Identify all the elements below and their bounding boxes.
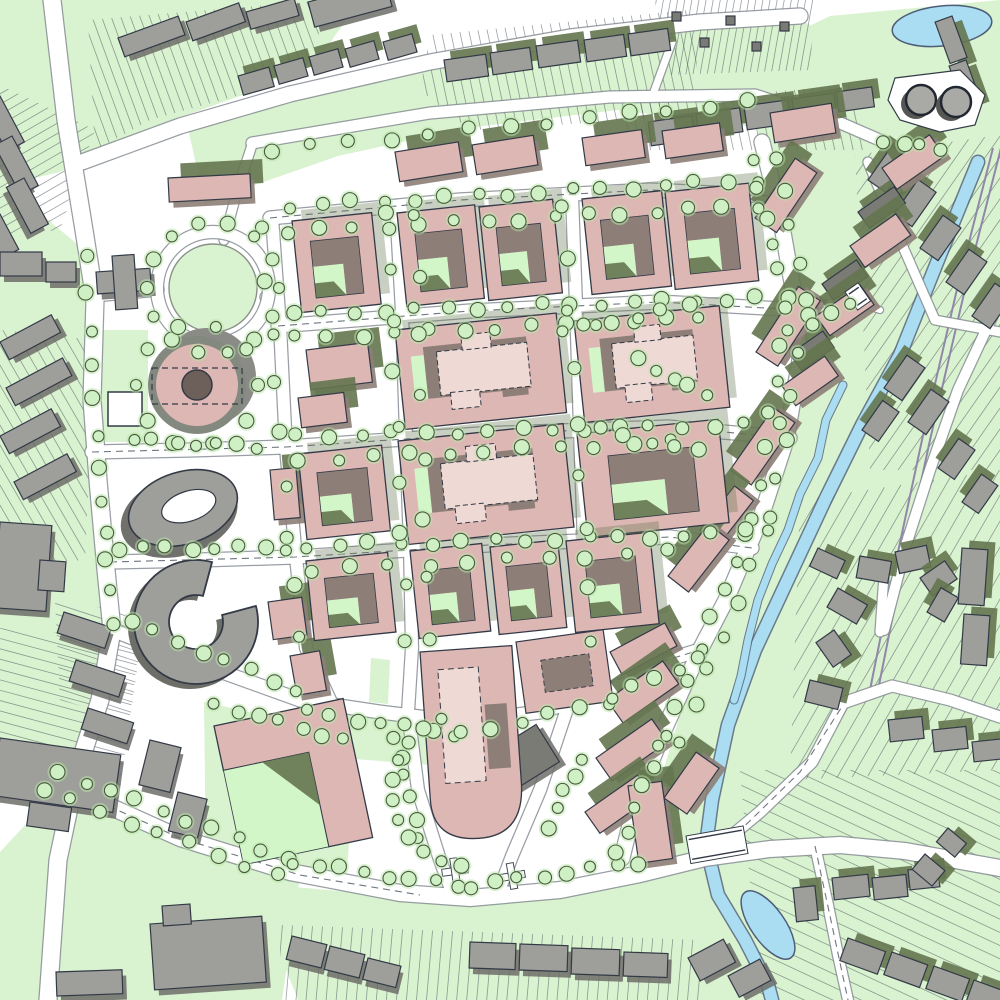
tree-icon bbox=[104, 784, 117, 797]
tree-icon bbox=[667, 700, 682, 715]
existing-building bbox=[150, 916, 271, 996]
tree-icon bbox=[547, 425, 558, 436]
tree-icon bbox=[612, 208, 627, 223]
tree-icon bbox=[259, 540, 274, 555]
tree-icon bbox=[514, 440, 529, 455]
tree-icon bbox=[408, 302, 419, 313]
tree-icon bbox=[604, 315, 619, 330]
tree-icon bbox=[748, 155, 759, 166]
tree-icon bbox=[289, 330, 300, 341]
tree-icon bbox=[105, 585, 116, 596]
tree-icon bbox=[393, 755, 404, 766]
existing-building bbox=[162, 904, 191, 926]
tree-icon bbox=[290, 686, 301, 697]
tree-icon bbox=[504, 119, 519, 134]
tree-icon bbox=[718, 583, 731, 596]
tree-icon bbox=[470, 302, 485, 317]
tree-icon bbox=[511, 872, 522, 883]
tree-icon bbox=[611, 530, 624, 543]
tree-icon bbox=[488, 874, 503, 889]
tree-icon bbox=[580, 580, 595, 595]
tree-icon bbox=[337, 733, 348, 744]
tree-icon bbox=[280, 545, 291, 556]
tree-icon bbox=[411, 327, 426, 342]
tree-icon bbox=[78, 285, 93, 300]
tree-icon bbox=[767, 239, 778, 250]
tree-icon bbox=[402, 445, 417, 460]
tree-icon bbox=[541, 706, 554, 719]
tree-icon bbox=[222, 347, 233, 358]
tree-icon bbox=[387, 731, 400, 744]
tree-icon bbox=[141, 343, 154, 356]
tree-icon bbox=[445, 449, 456, 460]
tree-icon bbox=[383, 222, 396, 235]
tree-icon bbox=[393, 476, 406, 489]
tree-icon bbox=[674, 665, 685, 676]
circular-building-core bbox=[182, 370, 212, 400]
tree-icon bbox=[625, 679, 638, 692]
tree-icon bbox=[750, 181, 763, 194]
tree-icon bbox=[541, 821, 556, 836]
tree-icon bbox=[661, 543, 674, 556]
tree-icon bbox=[622, 826, 635, 839]
tree-icon bbox=[272, 424, 287, 439]
existing-building bbox=[961, 606, 998, 666]
tree-icon bbox=[91, 460, 106, 475]
tree-icon bbox=[192, 217, 205, 230]
tree-icon bbox=[267, 675, 282, 690]
tree-icon bbox=[531, 186, 546, 201]
tree-icon bbox=[481, 425, 494, 438]
tree-icon bbox=[210, 321, 221, 332]
tree-icon bbox=[462, 121, 475, 134]
tree-icon bbox=[560, 251, 575, 266]
masterplan-map bbox=[0, 0, 1000, 1000]
tree-icon bbox=[281, 481, 292, 492]
tree-icon bbox=[678, 531, 689, 542]
tree-icon bbox=[209, 544, 220, 555]
tree-icon bbox=[770, 152, 783, 165]
tree-icon bbox=[541, 119, 552, 130]
tree-icon bbox=[186, 543, 201, 558]
tree-icon bbox=[229, 436, 244, 451]
map-canvas bbox=[0, 0, 1000, 1000]
tree-icon bbox=[516, 420, 531, 435]
tree-icon bbox=[427, 539, 440, 552]
tree-icon bbox=[691, 442, 706, 457]
tree-icon bbox=[266, 310, 279, 323]
tree-icon bbox=[220, 216, 235, 231]
tree-icon bbox=[401, 579, 412, 590]
tree-icon bbox=[536, 297, 549, 310]
tree-icon bbox=[172, 437, 185, 450]
tree-icon bbox=[151, 827, 162, 838]
tree-icon bbox=[137, 541, 148, 552]
existing-building bbox=[56, 970, 127, 1000]
tree-icon bbox=[93, 805, 106, 818]
tree-icon bbox=[290, 453, 305, 468]
tree-icon bbox=[342, 559, 357, 574]
tree-icon bbox=[191, 440, 202, 451]
tree-icon bbox=[409, 813, 424, 828]
tree-icon bbox=[417, 845, 430, 858]
tree-icon bbox=[629, 295, 642, 308]
tree-icon bbox=[272, 868, 285, 881]
tree-icon bbox=[876, 136, 889, 149]
supermarket-block bbox=[420, 646, 525, 842]
tree-icon bbox=[124, 817, 139, 832]
tree-icon bbox=[572, 700, 587, 715]
tree-icon bbox=[770, 473, 781, 484]
tree-icon bbox=[687, 174, 700, 187]
storage-tank bbox=[906, 85, 936, 115]
tree-icon bbox=[653, 740, 664, 751]
tree-icon bbox=[587, 442, 600, 455]
courtyard-block bbox=[297, 434, 401, 539]
tree-icon bbox=[348, 307, 361, 320]
tree-icon bbox=[794, 257, 807, 270]
tree-icon bbox=[385, 364, 400, 379]
tree-icon bbox=[50, 765, 65, 780]
tree-icon bbox=[305, 565, 318, 578]
tree-icon bbox=[704, 526, 717, 539]
tree-icon bbox=[718, 632, 729, 643]
tree-icon bbox=[760, 211, 775, 226]
tree-icon bbox=[631, 351, 646, 366]
tree-icon bbox=[580, 522, 593, 535]
tree-icon bbox=[607, 693, 618, 704]
tree-icon bbox=[762, 406, 775, 419]
tree-icon bbox=[443, 301, 456, 314]
tree-icon bbox=[570, 417, 585, 432]
existing-building bbox=[726, 16, 735, 25]
tree-icon bbox=[383, 872, 396, 885]
tree-icon bbox=[266, 253, 279, 266]
tree-icon bbox=[779, 301, 792, 314]
tree-icon bbox=[208, 698, 219, 709]
tree-icon bbox=[648, 761, 661, 774]
tree-icon bbox=[314, 729, 329, 744]
tree-icon bbox=[653, 303, 666, 316]
tree-icon bbox=[525, 318, 538, 331]
tree-icon bbox=[583, 111, 596, 124]
tree-icon bbox=[264, 144, 279, 159]
tree-icon bbox=[408, 210, 419, 221]
tree-icon bbox=[548, 533, 563, 548]
tree-icon bbox=[582, 207, 595, 220]
tree-icon bbox=[568, 183, 579, 194]
tree-icon bbox=[322, 430, 337, 445]
tree-icon bbox=[519, 535, 532, 548]
tree-icon bbox=[304, 138, 315, 149]
tree-icon bbox=[334, 539, 347, 552]
tree-icon bbox=[772, 376, 783, 387]
tree-icon bbox=[252, 708, 267, 723]
tree-icon bbox=[331, 859, 346, 874]
tree-icon bbox=[289, 428, 302, 441]
tree-icon bbox=[543, 551, 556, 564]
tree-icon bbox=[367, 449, 380, 462]
tree-icon bbox=[158, 806, 169, 817]
tree-icon bbox=[268, 376, 281, 389]
tree-icon bbox=[301, 543, 312, 554]
courtyard-block bbox=[291, 202, 391, 313]
tree-icon bbox=[392, 525, 407, 540]
tree-icon bbox=[297, 722, 310, 735]
tree-icon bbox=[539, 871, 552, 884]
existing-building bbox=[958, 540, 995, 606]
tree-icon bbox=[393, 814, 404, 825]
tree-icon bbox=[402, 736, 415, 749]
tree-icon bbox=[594, 421, 607, 434]
tree-icon bbox=[452, 429, 463, 440]
tree-icon bbox=[85, 390, 100, 405]
tree-icon bbox=[268, 329, 279, 340]
tree-icon bbox=[682, 297, 697, 312]
tree-icon bbox=[302, 704, 313, 715]
tree-icon bbox=[419, 453, 432, 466]
tree-icon bbox=[171, 319, 186, 334]
tree-icon bbox=[183, 835, 196, 848]
tree-icon bbox=[254, 844, 267, 857]
tree-icon bbox=[342, 193, 357, 208]
tree-icon bbox=[125, 614, 140, 629]
existing-building bbox=[700, 38, 709, 47]
tree-icon bbox=[287, 578, 302, 593]
tree-icon bbox=[274, 283, 285, 294]
tree-icon bbox=[477, 446, 490, 459]
tree-icon bbox=[378, 205, 393, 220]
tree-icon bbox=[196, 646, 211, 661]
tree-icon bbox=[107, 618, 120, 631]
pavilion-building bbox=[108, 392, 142, 426]
perimeter-block-with-inner-slab bbox=[394, 303, 574, 429]
tree-icon bbox=[615, 428, 630, 443]
tree-icon bbox=[491, 533, 502, 544]
tree-icon bbox=[249, 231, 260, 242]
tree-icon bbox=[501, 189, 514, 202]
tree-icon bbox=[593, 181, 606, 194]
tree-icon bbox=[702, 609, 717, 624]
existing-building bbox=[780, 22, 789, 31]
tree-icon bbox=[382, 559, 393, 570]
tree-icon bbox=[557, 326, 568, 337]
tree-icon bbox=[415, 512, 430, 527]
tree-icon bbox=[691, 651, 704, 664]
tree-icon bbox=[634, 778, 649, 793]
tree-icon bbox=[131, 380, 142, 391]
tree-icon bbox=[731, 596, 746, 611]
tree-icon bbox=[351, 714, 366, 729]
tree-icon bbox=[239, 862, 250, 873]
tree-icon bbox=[272, 714, 283, 725]
tree-icon bbox=[385, 772, 400, 787]
tree-icon bbox=[386, 794, 399, 807]
tree-icon bbox=[85, 359, 98, 372]
tree-icon bbox=[414, 270, 427, 283]
tree-icon bbox=[764, 511, 777, 524]
tree-icon bbox=[704, 101, 717, 114]
tree-icon bbox=[568, 362, 581, 375]
tree-icon bbox=[341, 134, 354, 147]
tree-icon bbox=[934, 143, 947, 156]
tree-icon bbox=[257, 274, 272, 289]
tree-icon bbox=[568, 769, 583, 784]
tree-icon bbox=[647, 438, 658, 449]
tree-icon bbox=[147, 624, 158, 635]
tree-icon bbox=[317, 197, 330, 210]
tree-icon bbox=[596, 300, 607, 311]
tree-icon bbox=[806, 318, 819, 331]
tree-icon bbox=[319, 330, 332, 343]
tree-icon bbox=[757, 439, 772, 454]
existing-building bbox=[752, 42, 761, 51]
tree-icon bbox=[313, 860, 326, 873]
tree-icon bbox=[166, 231, 177, 242]
existing-building bbox=[519, 944, 572, 978]
tree-icon bbox=[483, 722, 498, 737]
tree-icon bbox=[454, 725, 467, 738]
tree-icon bbox=[334, 455, 345, 466]
tree-icon bbox=[676, 422, 689, 435]
tree-icon bbox=[555, 441, 566, 452]
tree-icon bbox=[674, 737, 685, 748]
tree-icon bbox=[714, 199, 729, 214]
tree-icon bbox=[743, 558, 756, 571]
tree-icon bbox=[651, 365, 662, 376]
tree-icon bbox=[252, 379, 265, 392]
tree-icon bbox=[282, 227, 295, 240]
tree-icon bbox=[280, 531, 293, 544]
tree-icon bbox=[660, 106, 671, 117]
tree-icon bbox=[643, 531, 658, 546]
tree-icon bbox=[398, 635, 411, 648]
tree-icon bbox=[211, 848, 226, 863]
existing-building bbox=[38, 560, 66, 592]
tree-icon bbox=[423, 633, 436, 646]
tree-icon bbox=[210, 438, 221, 449]
tree-icon bbox=[359, 866, 370, 877]
existing-building bbox=[571, 948, 624, 982]
tree-icon bbox=[756, 480, 767, 491]
tree-icon bbox=[285, 203, 296, 214]
tree-icon bbox=[629, 802, 640, 813]
tree-icon bbox=[552, 802, 563, 813]
tree-icon bbox=[346, 222, 357, 233]
tree-icon bbox=[144, 432, 157, 445]
tree-icon bbox=[179, 815, 192, 828]
tree-icon bbox=[740, 93, 755, 108]
tree-icon bbox=[511, 214, 526, 229]
tree-icon bbox=[738, 417, 749, 428]
tree-icon bbox=[489, 325, 500, 336]
tree-icon bbox=[577, 551, 592, 566]
tree-icon bbox=[421, 571, 432, 582]
tree-icon bbox=[82, 779, 93, 790]
tree-icon bbox=[631, 857, 646, 872]
tree-icon bbox=[436, 188, 451, 203]
tree-icon bbox=[419, 425, 434, 440]
tree-icon bbox=[141, 282, 154, 295]
tree-icon bbox=[502, 302, 513, 313]
tree-icon bbox=[192, 346, 205, 359]
tree-icon bbox=[668, 440, 681, 453]
tree-icon bbox=[559, 866, 574, 881]
tree-icon bbox=[81, 249, 94, 262]
tree-icon bbox=[576, 754, 587, 765]
tree-icon bbox=[357, 430, 368, 441]
tree-icon bbox=[245, 662, 258, 675]
tree-icon bbox=[898, 137, 913, 152]
tree-icon bbox=[401, 830, 416, 845]
tree-icon bbox=[465, 882, 478, 895]
tree-icon bbox=[287, 305, 302, 320]
tree-icon bbox=[86, 326, 97, 337]
tree-icon bbox=[633, 313, 644, 324]
tree-icon bbox=[140, 413, 155, 428]
tree-icon bbox=[436, 856, 447, 867]
tree-icon bbox=[385, 264, 396, 275]
tree-icon bbox=[401, 871, 416, 886]
tree-icon bbox=[375, 718, 386, 729]
tree-icon bbox=[517, 717, 528, 728]
tree-icon bbox=[738, 522, 753, 537]
tree-icon bbox=[622, 104, 637, 119]
tree-icon bbox=[436, 713, 447, 724]
tree-icon bbox=[403, 790, 416, 803]
tree-icon bbox=[720, 295, 733, 308]
tree-icon bbox=[312, 220, 327, 235]
tree-icon bbox=[845, 298, 856, 309]
existing-building bbox=[469, 942, 520, 976]
tree-icon bbox=[483, 215, 496, 228]
tree-icon bbox=[772, 338, 787, 353]
tree-icon bbox=[660, 180, 671, 191]
tree-icon bbox=[778, 183, 793, 198]
tree-icon bbox=[357, 330, 372, 345]
tree-icon bbox=[652, 208, 663, 219]
tree-icon bbox=[824, 305, 839, 320]
tree-icon bbox=[783, 219, 794, 230]
tree-icon bbox=[914, 139, 925, 150]
tree-icon bbox=[414, 389, 425, 400]
tree-icon bbox=[773, 417, 786, 430]
tree-icon bbox=[763, 525, 774, 536]
tree-icon bbox=[693, 312, 704, 323]
tree-icon bbox=[784, 389, 797, 402]
tree-icon bbox=[562, 305, 573, 316]
tree-icon bbox=[37, 783, 52, 798]
tree-icon bbox=[172, 636, 185, 649]
existing-building bbox=[0, 252, 46, 282]
tree-icon bbox=[682, 201, 695, 214]
tree-icon bbox=[239, 413, 254, 428]
tree-icon bbox=[799, 292, 814, 307]
tree-icon bbox=[454, 858, 469, 873]
tree-icon bbox=[64, 793, 75, 804]
tree-icon bbox=[146, 252, 161, 267]
tree-icon bbox=[501, 552, 512, 563]
tree-icon bbox=[101, 526, 114, 539]
tree-icon bbox=[577, 318, 590, 331]
tree-icon bbox=[642, 420, 653, 431]
tree-icon bbox=[384, 133, 399, 148]
tree-icon bbox=[240, 343, 253, 356]
tree-icon bbox=[708, 420, 723, 435]
tree-icon bbox=[148, 311, 159, 322]
tree-icon bbox=[422, 129, 433, 140]
tree-icon bbox=[689, 697, 704, 712]
